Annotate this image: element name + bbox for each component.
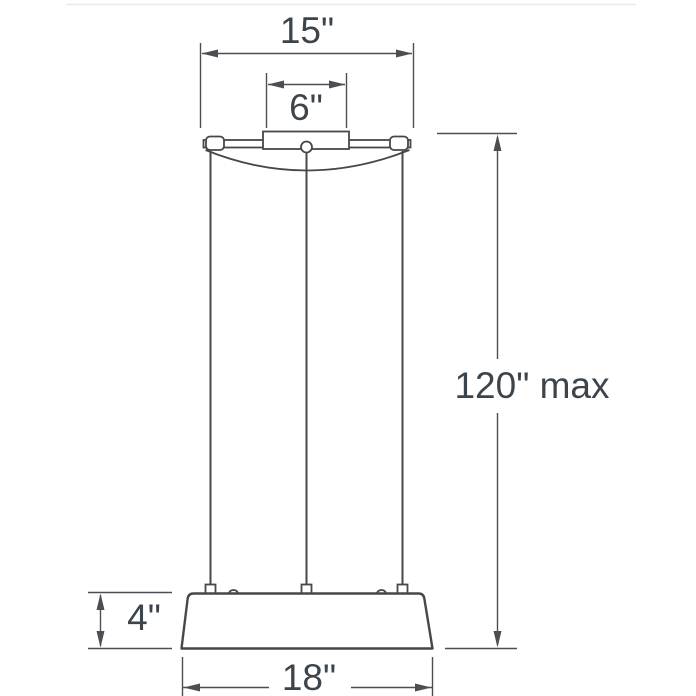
cable-connector-right [398, 585, 408, 594]
dimension-shade-width: 18" [183, 657, 433, 696]
shade-body [182, 594, 433, 649]
shade [182, 590, 433, 648]
arrowhead-up-icon [97, 594, 105, 611]
arrowhead-left-icon [202, 50, 219, 58]
arrowhead-right-icon [415, 684, 432, 692]
arrowhead-left-icon [184, 684, 201, 692]
dimension-canopy-mount-width: 6" [267, 73, 347, 128]
dimension-shade-height: 4" [88, 593, 172, 649]
dimension-label-suspension-max: 120" max [454, 365, 610, 406]
arrowhead-right-icon [329, 81, 346, 89]
canopy-end-cap-left [206, 137, 224, 151]
canopy-center-grommet [301, 142, 312, 153]
arrowhead-up-icon [494, 135, 502, 152]
cable-connector-left [206, 585, 216, 594]
arrowhead-down-icon [494, 631, 502, 648]
dimension-diagram: 15" 6" 120" max 4" [0, 0, 696, 696]
dimension-label-shade-width: 18" [282, 657, 336, 696]
cable-connector-center [302, 585, 312, 594]
arrowhead-down-icon [97, 631, 105, 648]
dimension-suspension-max: 120" max [437, 134, 610, 649]
canopy-end-cap-right [390, 137, 408, 151]
dimension-label-shade-height: 4" [127, 597, 161, 638]
fixture-diagram-svg: 15" 6" 120" max 4" [0, 0, 696, 696]
suspension-cables [206, 151, 408, 594]
arrowhead-left-icon [268, 81, 285, 89]
arrowhead-right-icon [396, 50, 413, 58]
dimension-label-canopy-mount-width: 6" [289, 87, 323, 128]
dimension-label-canopy-width: 15" [280, 10, 334, 51]
